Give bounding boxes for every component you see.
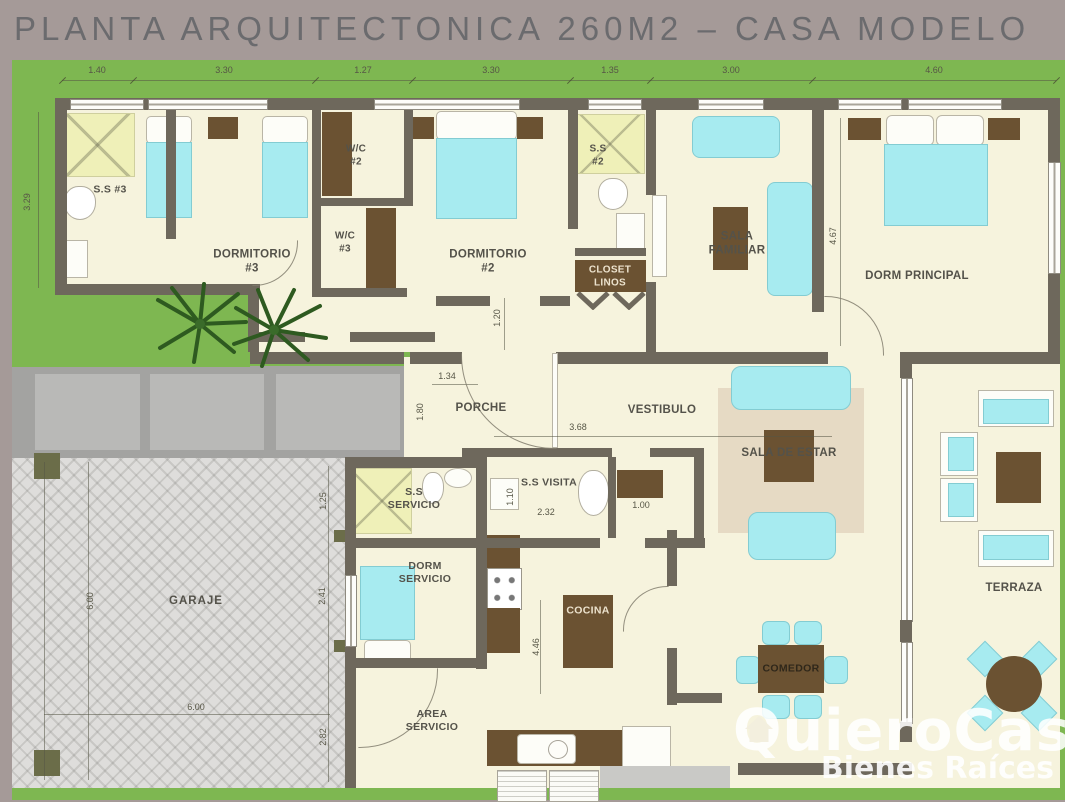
room-label-ss-servicio: S.S SERVICIO: [384, 486, 444, 512]
room-label-dormitorio2: DORMITORIO #2: [446, 248, 530, 277]
room-label-dorm-servicio: DORM SERVICIO: [392, 560, 458, 586]
room-label-closet-linos: CLOSET LINOS: [580, 265, 640, 290]
window: [70, 99, 144, 110]
dim-label: 6.00: [85, 592, 95, 610]
driveway-slab: [276, 374, 400, 450]
wall: [900, 620, 912, 642]
dim-label: 3.30: [215, 65, 233, 75]
dining-chair: [762, 621, 790, 645]
room-label-ss-visita: S.S VISITA: [521, 476, 577, 489]
wall: [55, 98, 67, 295]
dining-chair: [736, 656, 760, 684]
kitchen-counter: [487, 608, 520, 653]
wall: [556, 352, 828, 364]
room-label-ss3: S.S #3: [93, 183, 126, 196]
dim-label: 3.30: [482, 65, 500, 75]
dim-label: 1.10: [505, 488, 515, 506]
nightstand: [848, 118, 881, 140]
dining-chair: [794, 621, 822, 645]
dimension-line: [88, 462, 89, 780]
window: [838, 99, 902, 110]
palm-tree-icon: [142, 282, 342, 368]
wall: [667, 693, 722, 703]
wall: [345, 457, 356, 577]
wall: [568, 109, 578, 229]
dim-label: 3.00: [722, 65, 740, 75]
dim-label: 1.35: [601, 65, 619, 75]
floor-plan: S.S #3 DORMITORIO #3 W/C #2 W/C #3 DORMI…: [0, 0, 1065, 800]
room-label-sala-familiar: SALA FAMILIAR: [703, 230, 771, 259]
room-label-comedor: COMEDOR: [763, 662, 820, 675]
fridge: [622, 726, 671, 768]
wall: [404, 109, 413, 206]
wall: [812, 109, 824, 312]
house-logo-icon: [743, 713, 775, 745]
wall: [900, 352, 1060, 364]
dim-label: 1.27: [354, 65, 372, 75]
page-title: PLANTA ARQUITECTONICA 260M2 – CASA MODEL…: [14, 10, 1059, 48]
dimension-line: [504, 298, 505, 350]
washer: [497, 770, 547, 802]
dim-label: 1.80: [415, 403, 425, 421]
wall: [646, 109, 656, 195]
wardrobe: [366, 208, 396, 288]
window: [908, 99, 1002, 110]
outdoor-chair: [940, 478, 978, 522]
dimension-line: [62, 80, 1056, 81]
wall: [540, 296, 570, 306]
toilet: [64, 186, 96, 220]
outdoor-table: [996, 452, 1041, 503]
dining-chair: [824, 656, 848, 684]
driveway-slab: [150, 374, 264, 450]
wall: [345, 457, 487, 468]
wall: [694, 448, 704, 548]
garage-floor: [12, 458, 346, 788]
dimension-line: [44, 462, 45, 780]
room-label-garaje: GARAJE: [169, 594, 223, 608]
room-label-ss2: S.S #2: [584, 144, 612, 169]
window: [588, 99, 642, 110]
wall: [436, 296, 490, 306]
toilet: [578, 470, 609, 516]
window: [1048, 162, 1061, 274]
dim-label: 4.46: [531, 638, 541, 656]
nightstand: [208, 117, 238, 139]
dim-label: 1.40: [88, 65, 106, 75]
nightstand: [517, 117, 543, 139]
sink: [444, 468, 472, 488]
outdoor-sofa: [978, 390, 1054, 427]
wall: [166, 109, 176, 239]
sofa: [767, 182, 813, 296]
wall: [646, 282, 656, 352]
wall: [608, 457, 616, 538]
dim-label: 1.34: [438, 371, 456, 381]
door-leaf: [652, 195, 667, 277]
window: [901, 378, 913, 622]
utility-floor: [600, 766, 730, 788]
hall-closet: [617, 470, 663, 498]
dimension-line: [328, 466, 329, 782]
sofa: [731, 366, 851, 410]
dim-label: 4.60: [925, 65, 943, 75]
watermark-tagline: Bienes Raíces: [740, 751, 1054, 786]
dim-label: 3.29: [22, 193, 32, 211]
dimension-line: [44, 714, 330, 715]
pillow: [886, 115, 934, 146]
driveway-slab: [35, 374, 140, 450]
washer: [549, 770, 599, 802]
dim-label: 2.82: [318, 728, 328, 746]
room-label-dormitorio3: DORMITORIO #3: [210, 248, 294, 277]
pillow: [262, 116, 308, 144]
pillow: [936, 115, 984, 146]
wall: [410, 352, 462, 364]
room-label-area-servicio: AREA SERVICIO: [399, 708, 465, 734]
room-label-porche: PORCHE: [455, 401, 506, 415]
room-label-sala-de-estar: SALA DE ESTAR: [741, 446, 836, 460]
window: [698, 99, 764, 110]
door-swing-icon: [575, 292, 647, 310]
room-label-wc3: W/C #3: [329, 231, 361, 256]
wall: [900, 352, 912, 378]
dim-label: 4.67: [828, 227, 838, 245]
garage-post: [34, 453, 60, 479]
garage-post: [34, 750, 60, 776]
room-label-wc2: W/C #2: [340, 144, 372, 169]
window: [148, 99, 268, 110]
dim-label: 1.00: [632, 500, 650, 510]
bed: [436, 138, 517, 219]
wall: [667, 530, 677, 586]
window: [374, 99, 520, 110]
window: [345, 575, 357, 647]
room-label-cocina: COCINA: [566, 604, 609, 617]
toilet: [598, 178, 628, 210]
wall: [476, 448, 487, 669]
room-label-vestibulo: VESTIBULO: [628, 403, 697, 417]
dim-label: 6.00: [187, 702, 205, 712]
sofa: [748, 512, 836, 560]
bed: [262, 142, 308, 218]
dim-label: 1.25: [318, 492, 328, 510]
room-label-terraza: TERRAZA: [985, 581, 1042, 595]
outdoor-sofa: [978, 530, 1054, 567]
wall: [345, 658, 487, 668]
wall: [350, 332, 435, 342]
dimension-line: [38, 112, 39, 288]
dim-label: 3.68: [569, 422, 587, 432]
outdoor-chair: [940, 432, 978, 476]
bed: [884, 144, 988, 226]
wall: [312, 198, 413, 206]
dim-label: 2.32: [537, 507, 555, 517]
wall: [575, 248, 646, 256]
pillow: [436, 111, 517, 140]
dim-label: 2.41: [317, 587, 327, 605]
shower: [60, 113, 135, 177]
dim-label: 1.20: [492, 309, 502, 327]
wall: [345, 538, 600, 548]
room-label-dorm-principal: DORM PRINCIPAL: [865, 269, 969, 283]
laundry-sink: [517, 734, 576, 764]
sofa: [692, 116, 780, 158]
stove: [487, 568, 522, 610]
nightstand: [988, 118, 1020, 140]
